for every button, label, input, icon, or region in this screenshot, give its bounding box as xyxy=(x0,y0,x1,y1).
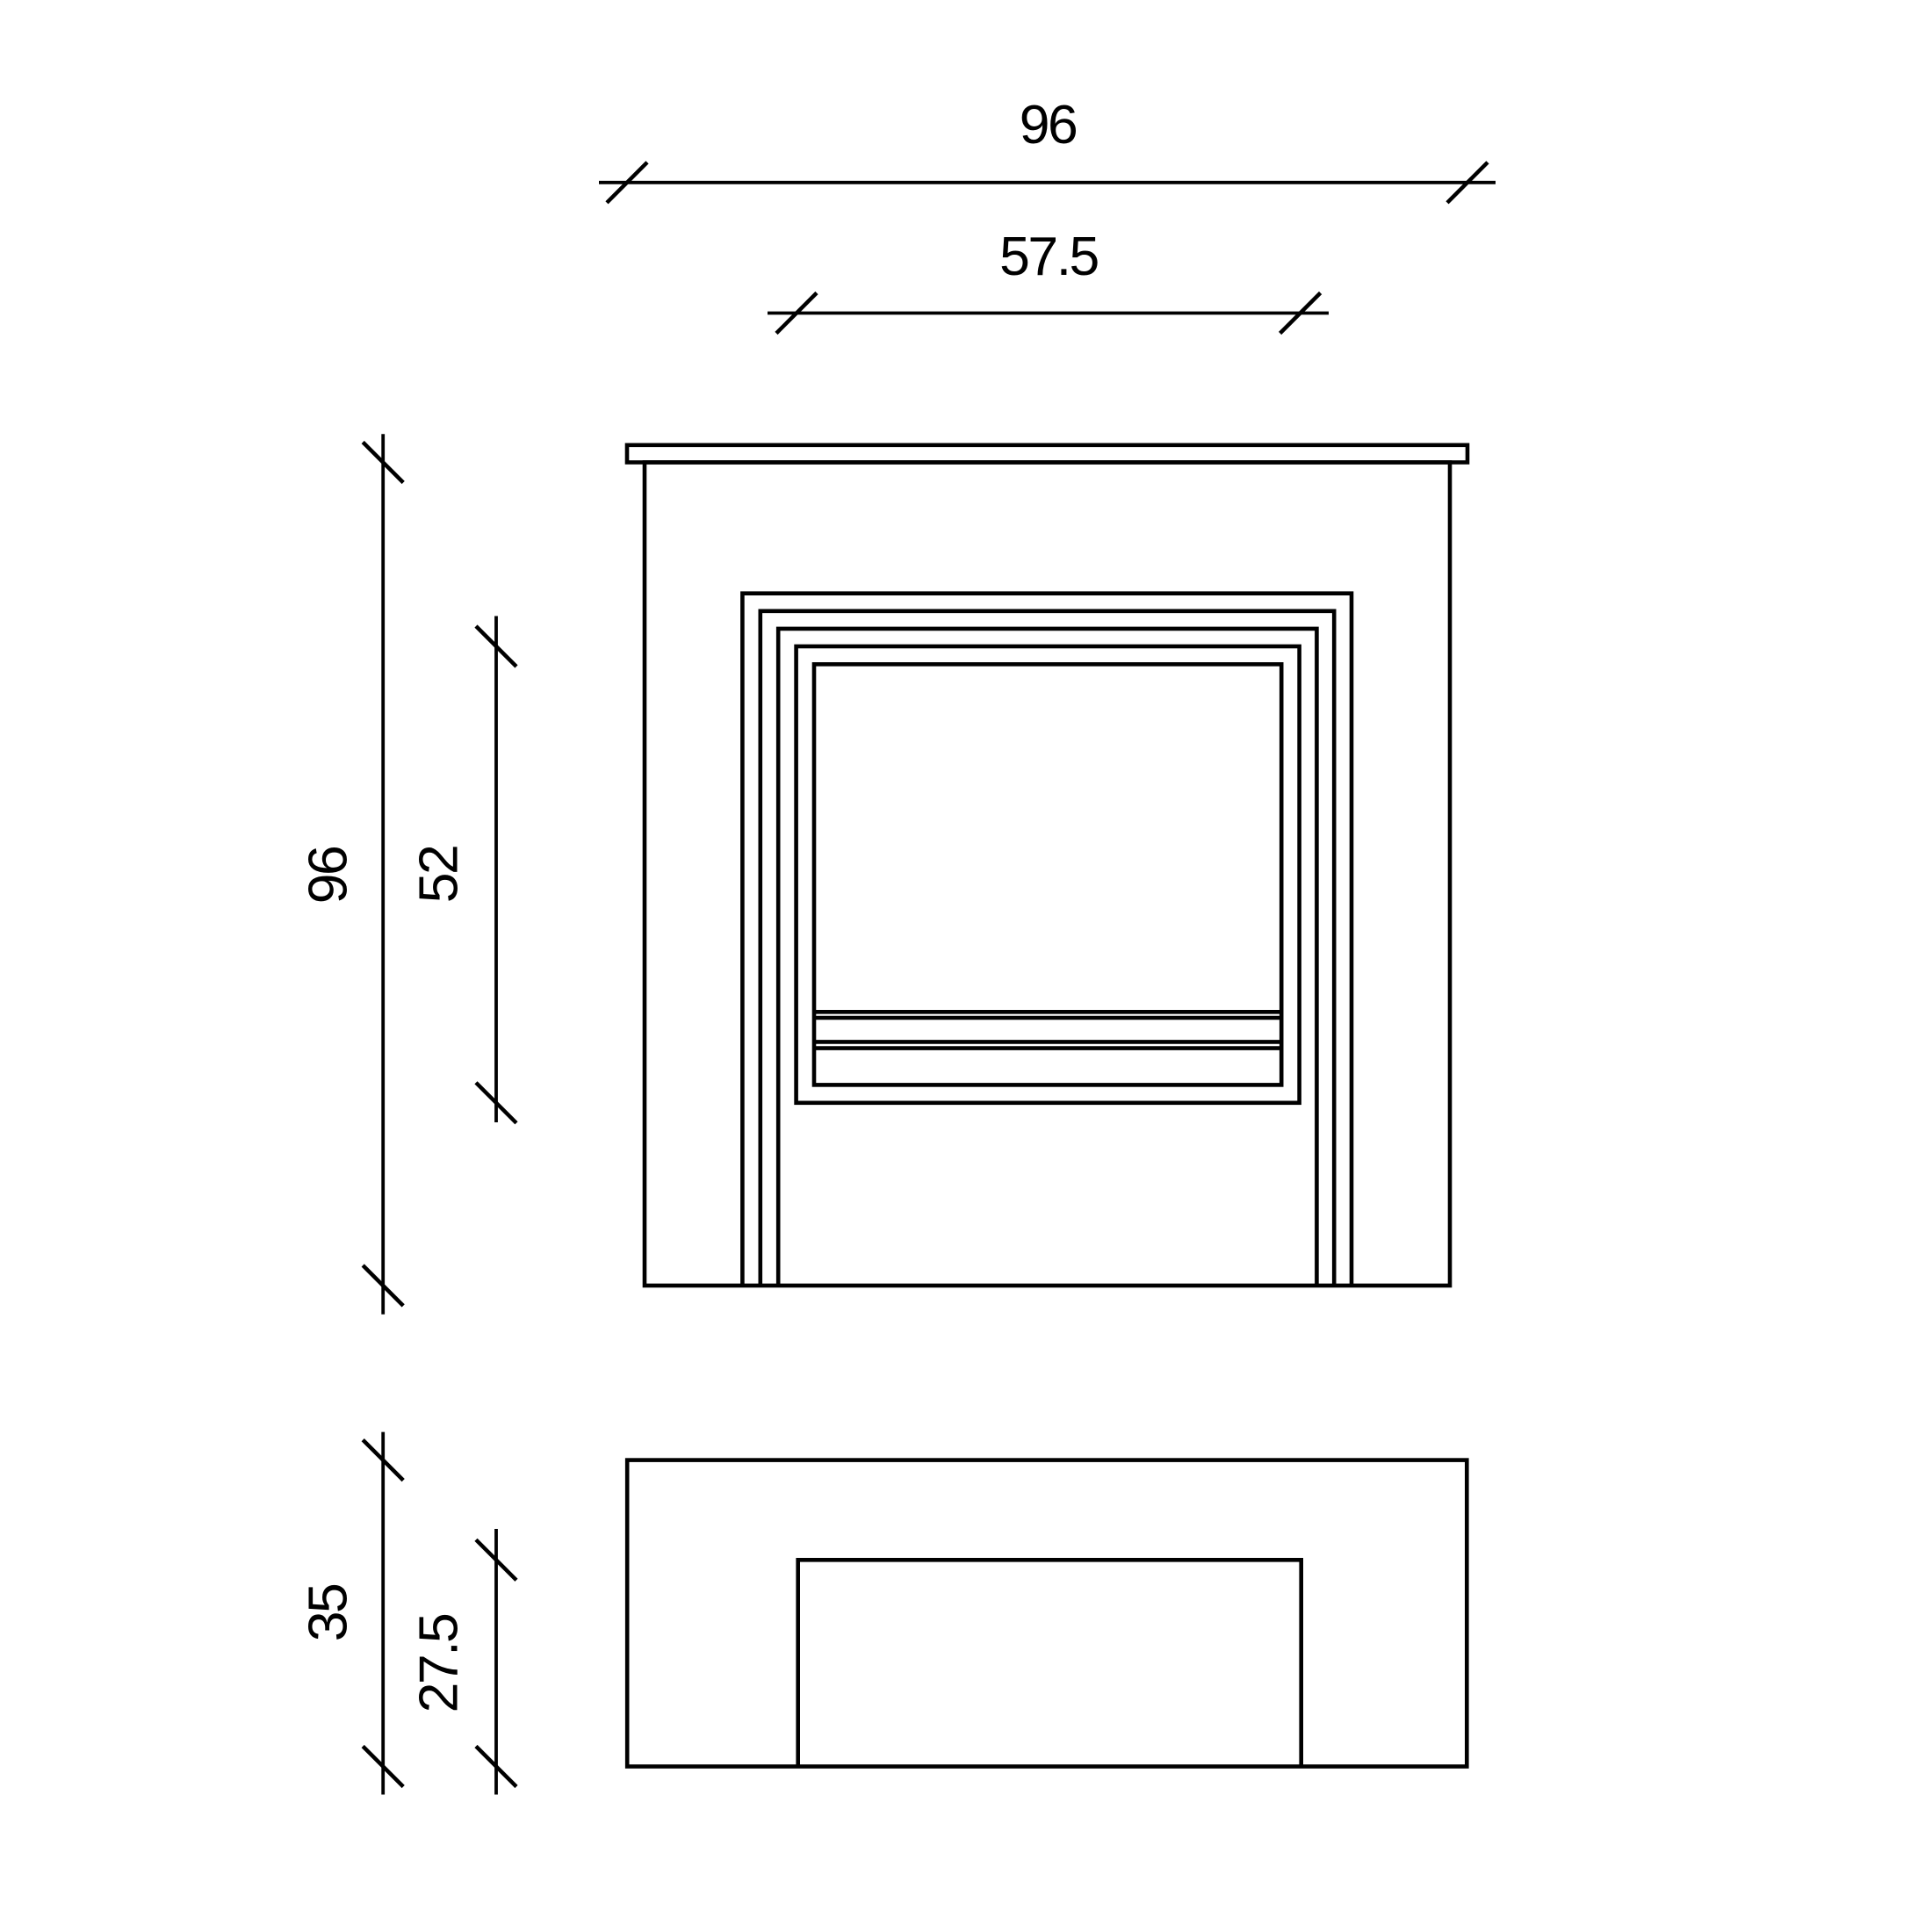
svg-text:35: 35 xyxy=(298,1584,359,1641)
svg-text:57.5: 57.5 xyxy=(999,226,1098,287)
svg-text:96: 96 xyxy=(298,847,359,904)
svg-text:96: 96 xyxy=(1020,94,1077,155)
svg-text:52: 52 xyxy=(408,847,470,904)
svg-text:27.5: 27.5 xyxy=(408,1614,470,1712)
